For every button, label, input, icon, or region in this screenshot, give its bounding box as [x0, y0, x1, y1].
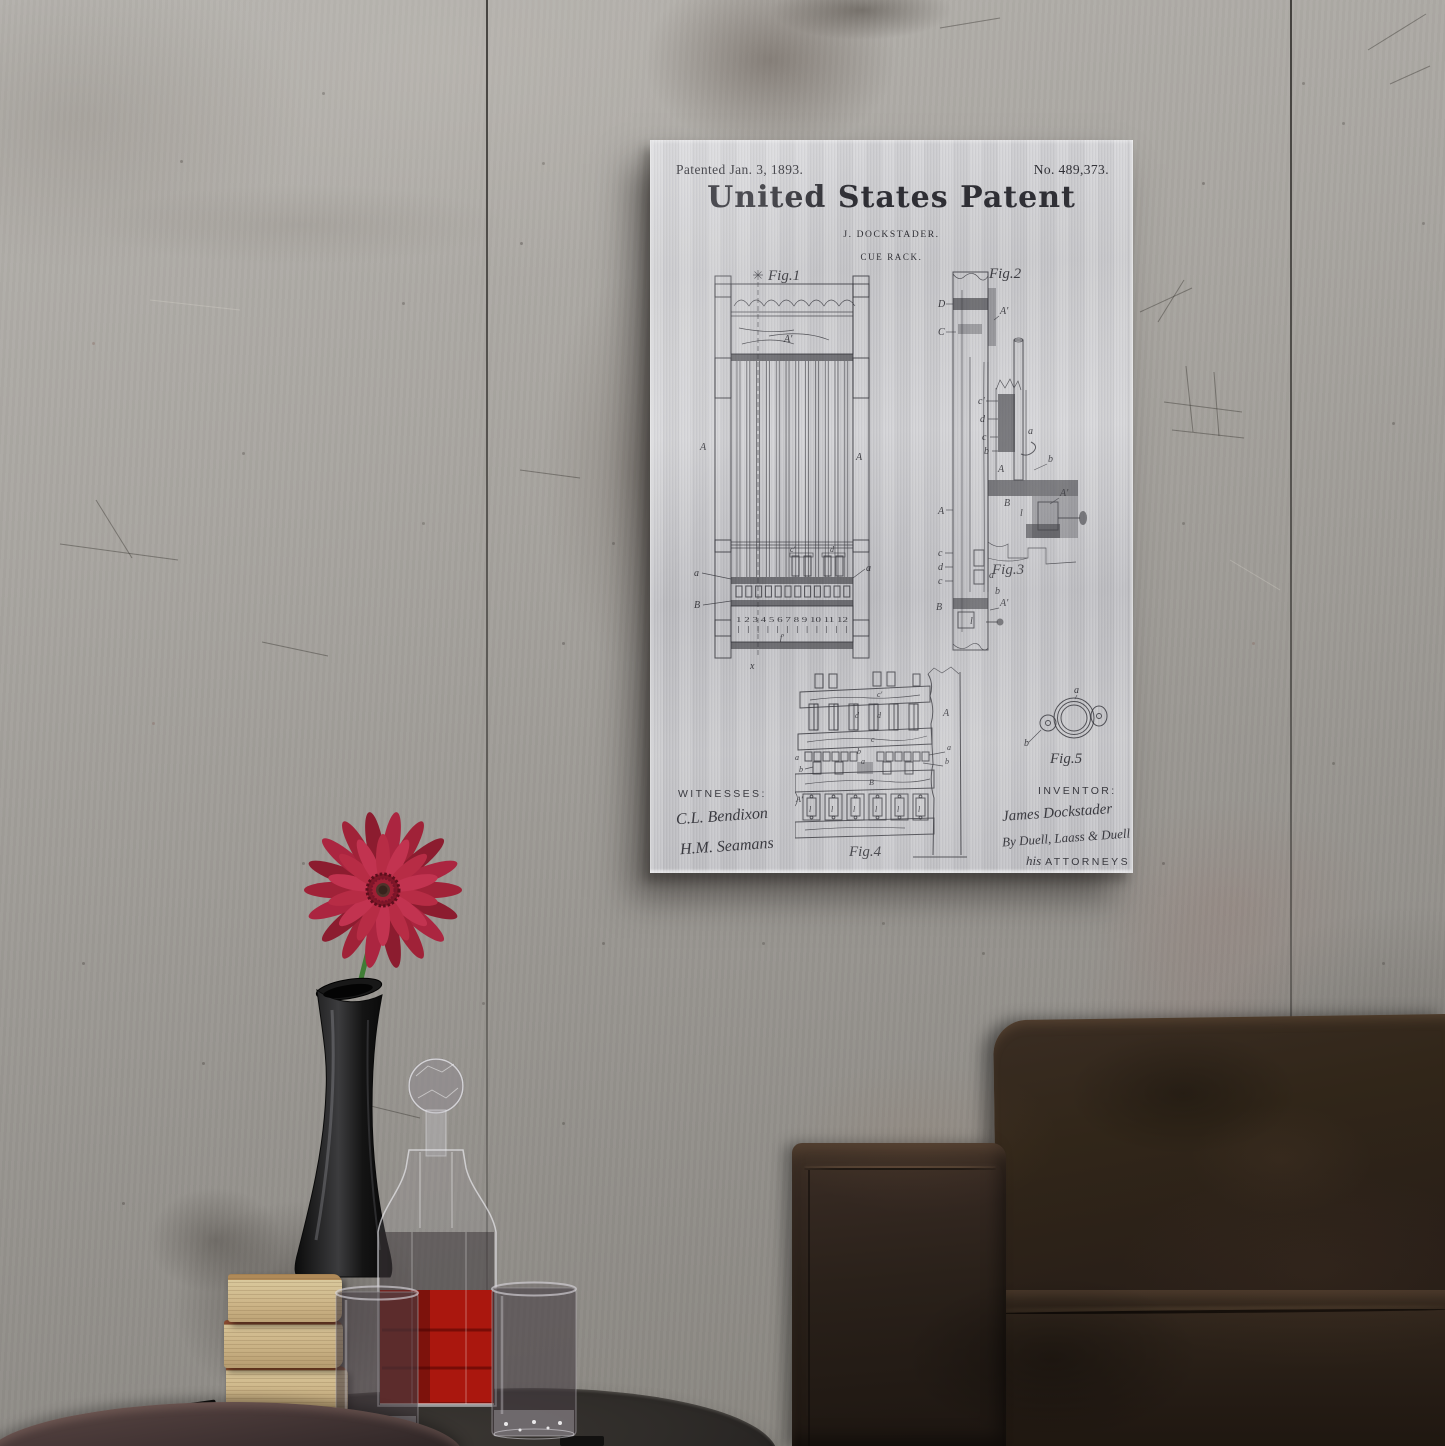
- fig4-callout-b-rail: B: [869, 778, 874, 787]
- fig2-callout-b-mid: b: [984, 446, 989, 457]
- fig1-cue-numbers: 1 2 3 4 5 6 7 8 9 10 11 12: [736, 615, 848, 624]
- fig4-callout-d2: d: [877, 711, 882, 720]
- fig4-plan-view: A c' d d c: [795, 662, 985, 862]
- fig4-callout-b-ctr: b: [857, 747, 861, 756]
- attorneys-line: his ATTORNEYS: [1026, 852, 1130, 870]
- fig2-callout-a-prime-top: A': [999, 306, 1009, 317]
- fig2-callout-a-cue: A: [997, 464, 1005, 475]
- fig2-callout-d-lo: d: [938, 562, 944, 573]
- fig1-callout-post-right: A: [855, 452, 863, 463]
- patent-inventor-caps: J. DOCKSTADER.: [650, 230, 1133, 240]
- fig2-callout-c-mid: c: [982, 432, 987, 443]
- sofa-armrest-seam: [804, 1168, 996, 1170]
- fig4-callout-c: c: [871, 735, 875, 744]
- book: [224, 1320, 343, 1368]
- wall-speckles: [0, 0, 3, 3]
- fig2-callout-c-lo2: c: [938, 576, 943, 587]
- fig2-callout-l-mid: l: [1020, 508, 1023, 519]
- wall-seam-left: [486, 0, 488, 1446]
- fig2-callout-D: D: [937, 299, 946, 310]
- witness-signature-2: H.M. Seamans: [679, 835, 774, 859]
- fig3-label: Fig.3: [991, 562, 1024, 578]
- witnesses-label: WITNESSES:: [678, 788, 767, 800]
- attorneys-prefix: his: [1026, 853, 1041, 868]
- fig1-callout-a-left: a: [694, 568, 699, 579]
- fig4-callout-l4: l: [875, 805, 878, 814]
- fig2-callout-b-lo: b: [995, 586, 1000, 597]
- sofa-armrest-side-seam: [808, 1170, 810, 1446]
- table-edge-bracket: [560, 1436, 604, 1446]
- fig5-label: Fig.5: [1049, 751, 1083, 767]
- fig2-callout-b-cap-lo: B: [936, 602, 942, 613]
- fig4-callout-a-post: A: [942, 708, 950, 719]
- patent-date: Patented Jan. 3, 1893.: [676, 162, 803, 178]
- fig1-callout-b-rail: B: [694, 600, 700, 611]
- fig4-callout-a-right: a: [947, 743, 951, 752]
- fig4-callout-l5: l: [897, 805, 900, 814]
- fig2-callout-a-prime-lo: A': [999, 598, 1009, 609]
- fig1-callout-a-right: a: [866, 563, 871, 574]
- fig1-callout-d: d: [830, 545, 835, 554]
- fig2-callout-l-lo: l: [970, 616, 973, 627]
- attorney-signature: By Duell, Laass & Duell: [1002, 826, 1131, 851]
- fig2-callout-b-right: b: [1048, 454, 1053, 465]
- fig1-callout-x-bottom: x: [749, 661, 755, 672]
- fig4-callout-c-prime: c': [877, 690, 883, 699]
- fig4-callout-l3: l: [853, 805, 856, 814]
- fig2-fig3-side-views: Fig.2 D A' C c' d c b a b: [934, 262, 1110, 662]
- fig4-callout-l1: l: [809, 805, 812, 814]
- inventor-signature: James Dockstader: [1002, 801, 1113, 826]
- fig4-callout-b-left: b: [799, 765, 803, 774]
- fig5-callout-b: b: [1024, 738, 1029, 749]
- fig5-callout-a: a: [1074, 685, 1079, 696]
- fig4-callout-b-right: b: [945, 757, 949, 766]
- fig4-callout-a-left: a: [795, 753, 799, 762]
- patent-subject: CUE RACK.: [650, 252, 1133, 262]
- patent-print: Patented Jan. 3, 1893. No. 489,373. Unit…: [650, 140, 1133, 873]
- fig2-callout-a-mid: a: [1028, 426, 1033, 437]
- fig2-callout-a-post: A: [937, 506, 945, 517]
- fig4-label: Fig.4: [848, 844, 882, 860]
- fig1-cue-rack-front-view: Fig.1 A' A A c' d: [684, 264, 884, 672]
- patent-number: No. 489,373.: [1034, 162, 1109, 178]
- fig1-callout-a-prime: A': [783, 334, 793, 345]
- fig4-callout-a-prime: A': [795, 795, 803, 804]
- fig5-ring-clamp: a b Fig.5: [1018, 684, 1118, 768]
- section-star-marker: [753, 270, 763, 280]
- fig4-callout-l2: l: [831, 805, 834, 814]
- fig4-callout-l6: l: [918, 805, 921, 814]
- witness-signature-1: C.L. Bendixon: [675, 805, 768, 829]
- fig2-callout-a-lo: a: [989, 570, 994, 581]
- fig2-callout-c-prime: c': [978, 396, 985, 407]
- sofa-armrest: [792, 1143, 1006, 1446]
- room-scene: Patented Jan. 3, 1893. No. 489,373. Unit…: [0, 0, 1445, 1446]
- fig1-label: Fig.1: [767, 268, 800, 284]
- fig1-callout-f-prime: f': [780, 633, 784, 642]
- fig2-callout-b-cap: B: [1004, 498, 1010, 509]
- fig4-callout-d1: d: [855, 711, 860, 720]
- fig2-callout-c-lo1: c: [938, 548, 943, 559]
- book: [228, 1274, 342, 1322]
- fig2-callout-C: C: [938, 327, 945, 338]
- fig2-label: Fig.2: [988, 266, 1022, 282]
- fig1-callout-c-prime: c': [790, 545, 796, 554]
- inventor-label: INVENTOR:: [1038, 785, 1117, 797]
- attorneys-label: ATTORNEYS: [1045, 856, 1130, 868]
- fig2-callout-d-mid: d: [980, 414, 986, 425]
- fig1-callout-post-left: A: [699, 442, 707, 453]
- patent-title: United States Patent: [650, 180, 1133, 215]
